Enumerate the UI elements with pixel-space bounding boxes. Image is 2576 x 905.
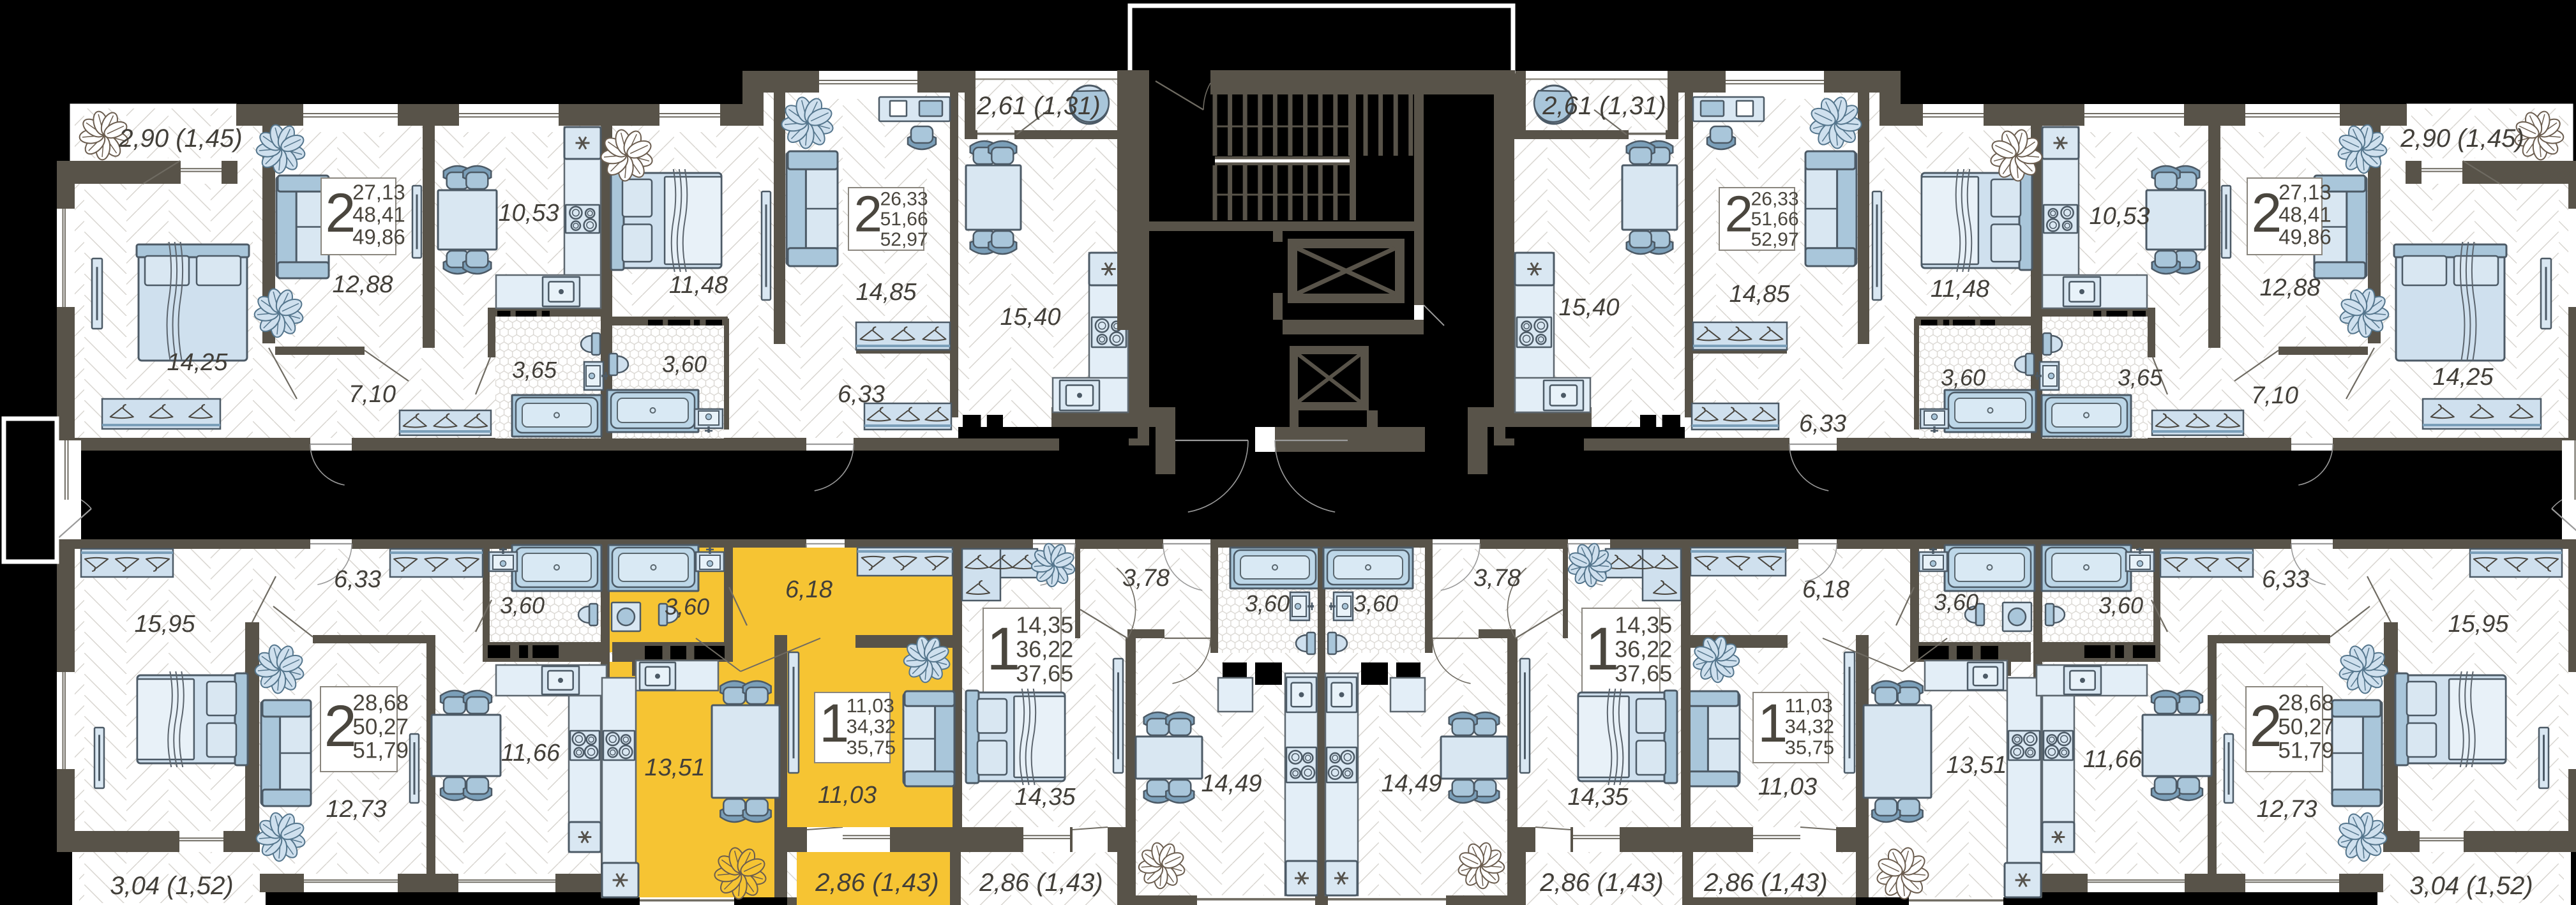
svg-text:2: 2 <box>2250 694 2282 759</box>
svg-text:2: 2 <box>1724 186 1753 243</box>
svg-text:15,95: 15,95 <box>2448 611 2509 638</box>
svg-text:27,13: 27,13 <box>2278 181 2331 204</box>
svg-text:2: 2 <box>324 694 357 759</box>
svg-text:15,40: 15,40 <box>1000 304 1060 331</box>
svg-text:14,25: 14,25 <box>167 349 228 376</box>
svg-text:3,60: 3,60 <box>662 351 707 377</box>
svg-text:50,27: 50,27 <box>2278 714 2334 739</box>
svg-text:2,86 (1,43): 2,86 (1,43) <box>979 869 1103 897</box>
svg-text:28,68: 28,68 <box>352 691 409 715</box>
svg-text:11,66: 11,66 <box>2083 746 2143 773</box>
svg-text:52,97: 52,97 <box>1751 229 1799 250</box>
svg-text:3,60: 3,60 <box>2098 592 2143 618</box>
svg-text:52,97: 52,97 <box>880 229 928 250</box>
svg-text:3,60: 3,60 <box>1353 590 1398 617</box>
svg-text:2,90 (1,45): 2,90 (1,45) <box>118 124 242 153</box>
svg-text:2,86 (1,43): 2,86 (1,43) <box>815 869 938 897</box>
svg-text:2,86 (1,43): 2,86 (1,43) <box>1539 869 1663 897</box>
svg-text:2: 2 <box>325 183 356 244</box>
svg-text:3,60: 3,60 <box>1934 589 1978 615</box>
svg-text:2,61 (1,31): 2,61 (1,31) <box>1542 92 1666 120</box>
svg-text:1: 1 <box>1585 615 1619 683</box>
svg-text:3,78: 3,78 <box>1473 565 1521 592</box>
svg-text:6,33: 6,33 <box>1799 410 1846 437</box>
svg-text:7,10: 7,10 <box>349 381 396 408</box>
svg-text:13,51: 13,51 <box>1946 752 2007 779</box>
svg-text:35,75: 35,75 <box>1785 737 1835 759</box>
svg-text:49,86: 49,86 <box>2278 225 2331 249</box>
svg-text:3,60: 3,60 <box>1941 364 1985 391</box>
svg-text:3,04 (1,52): 3,04 (1,52) <box>110 872 233 900</box>
svg-text:11,66: 11,66 <box>501 740 561 767</box>
svg-text:2: 2 <box>2251 183 2282 244</box>
svg-text:2,90 (1,45): 2,90 (1,45) <box>2400 124 2524 153</box>
svg-text:26,33: 26,33 <box>1751 188 1799 209</box>
svg-text:50,27: 50,27 <box>352 714 409 739</box>
svg-text:14,49: 14,49 <box>1381 770 1442 797</box>
svg-text:2: 2 <box>854 186 882 243</box>
svg-text:37,65: 37,65 <box>1016 661 1073 687</box>
svg-text:11,48: 11,48 <box>669 272 728 299</box>
svg-text:3,65: 3,65 <box>512 357 557 383</box>
svg-text:14,35: 14,35 <box>1016 611 1073 638</box>
svg-text:14,85: 14,85 <box>855 279 917 306</box>
svg-text:27,13: 27,13 <box>352 181 405 204</box>
svg-text:6,18: 6,18 <box>1802 576 1849 603</box>
svg-text:48,41: 48,41 <box>2278 203 2331 227</box>
svg-text:14,35: 14,35 <box>1567 784 1629 811</box>
svg-text:34,32: 34,32 <box>847 715 896 738</box>
svg-text:12,73: 12,73 <box>326 796 386 823</box>
svg-text:51,66: 51,66 <box>1751 209 1799 230</box>
svg-text:51,79: 51,79 <box>352 738 409 763</box>
svg-text:3,60: 3,60 <box>1245 590 1290 617</box>
svg-text:12,73: 12,73 <box>2256 796 2317 823</box>
svg-text:49,86: 49,86 <box>352 225 405 249</box>
svg-text:48,41: 48,41 <box>352 203 405 227</box>
svg-text:3,65: 3,65 <box>2118 364 2163 391</box>
svg-text:6,33: 6,33 <box>838 381 885 408</box>
svg-text:3,78: 3,78 <box>1122 565 1170 592</box>
svg-text:13,51: 13,51 <box>644 754 705 781</box>
svg-text:10,53: 10,53 <box>498 200 559 227</box>
svg-text:36,22: 36,22 <box>1615 636 1672 662</box>
svg-text:12,88: 12,88 <box>332 271 393 298</box>
svg-text:1: 1 <box>819 693 849 753</box>
svg-text:51,66: 51,66 <box>880 209 928 230</box>
svg-text:11,03: 11,03 <box>818 782 877 809</box>
svg-text:15,40: 15,40 <box>1558 294 1619 321</box>
svg-text:11,03: 11,03 <box>1785 694 1833 717</box>
svg-text:36,22: 36,22 <box>1016 636 1073 662</box>
svg-text:2,86 (1,43): 2,86 (1,43) <box>1703 869 1827 897</box>
svg-text:2,61 (1,31): 2,61 (1,31) <box>976 92 1100 120</box>
svg-text:11,03: 11,03 <box>847 694 894 717</box>
svg-text:37,65: 37,65 <box>1615 661 1672 687</box>
svg-text:14,25: 14,25 <box>2432 364 2494 391</box>
svg-text:11,48: 11,48 <box>1931 276 1989 303</box>
svg-text:28,68: 28,68 <box>2278 691 2334 715</box>
svg-text:1: 1 <box>1758 693 1788 753</box>
svg-text:15,95: 15,95 <box>134 611 195 638</box>
svg-text:14,85: 14,85 <box>1729 281 1790 308</box>
svg-text:12,88: 12,88 <box>2259 274 2320 301</box>
svg-text:6,18: 6,18 <box>785 576 832 603</box>
svg-text:51,79: 51,79 <box>2278 738 2334 763</box>
svg-text:14,35: 14,35 <box>1615 611 1672 638</box>
svg-text:6,33: 6,33 <box>2262 566 2309 593</box>
svg-text:1: 1 <box>986 615 1020 683</box>
svg-text:6,33: 6,33 <box>334 566 381 593</box>
svg-text:14,35: 14,35 <box>1014 784 1076 811</box>
svg-text:3,04 (1,52): 3,04 (1,52) <box>2409 872 2533 900</box>
svg-text:3,60: 3,60 <box>500 592 545 618</box>
svg-text:34,32: 34,32 <box>1785 715 1835 738</box>
svg-text:10,53: 10,53 <box>2089 203 2150 230</box>
svg-text:3,60: 3,60 <box>665 594 709 620</box>
svg-text:26,33: 26,33 <box>880 188 928 209</box>
svg-text:11,03: 11,03 <box>1758 774 1817 800</box>
svg-text:35,75: 35,75 <box>847 737 896 759</box>
svg-text:7,10: 7,10 <box>2251 382 2298 409</box>
svg-text:14,49: 14,49 <box>1201 770 1262 797</box>
